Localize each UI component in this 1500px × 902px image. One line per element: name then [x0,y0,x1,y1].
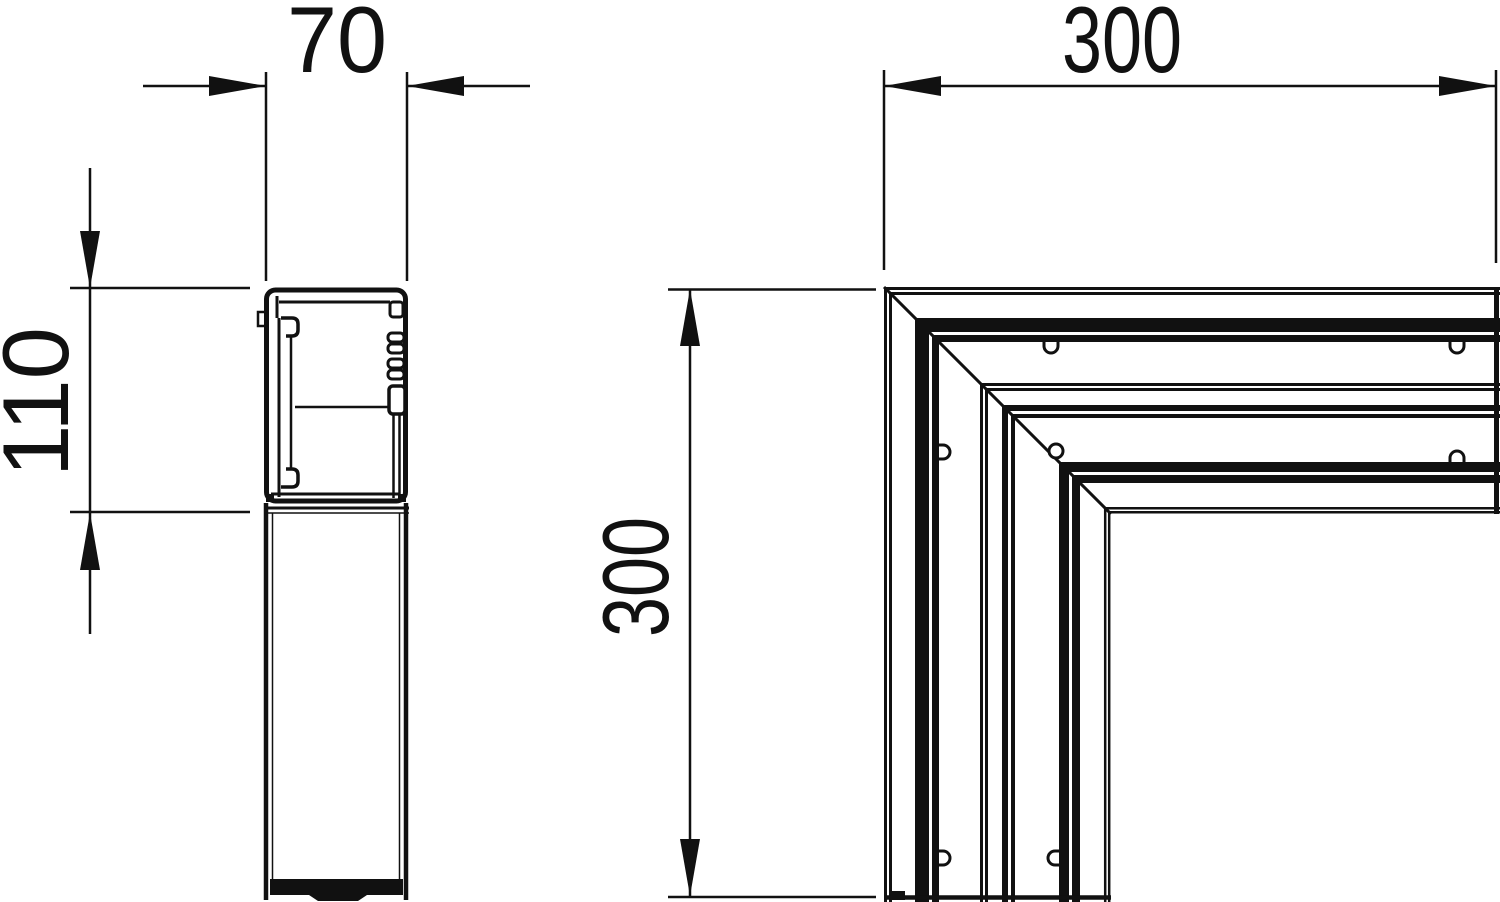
dimension-angle-height: 300 [583,289,876,897]
mounting-notch [1450,342,1464,353]
dimension-angle-length: 300 [884,0,1496,270]
body-end-band [270,879,403,895]
dim-arrow [680,289,700,346]
dim-label-profile-width: 70 [287,0,387,92]
mounting-notch [939,851,950,865]
flat-angle-plan-view [884,287,1500,902]
mounting-notch [1450,451,1464,462]
section-hook-bottom [281,469,298,487]
dim-arrow [884,76,941,96]
angle-band-d2 [1076,479,1500,902]
angle-band-d1 [1064,467,1500,902]
technical-drawing-canvas: 70 110 [0,0,1500,902]
profile-section-view [258,290,406,502]
section-clip [388,344,404,353]
dim-arrow [407,76,464,96]
dim-label-profile-height: 110 [0,327,88,477]
section-left-step [258,312,266,326]
mounting-notch [939,445,950,459]
dim-label-angle-length: 300 [1062,0,1182,92]
dim-arrow [1439,76,1496,96]
mounting-notch [1048,851,1059,865]
dim-arrow [680,839,700,896]
angle-inner-edge [1105,508,1500,902]
corner-hole [1049,444,1063,458]
section-clip [388,359,404,368]
angle-end-corner-fill [891,891,905,900]
body-end-foot [309,895,367,901]
dim-arrow [80,231,100,288]
section-corner-fill [266,494,274,502]
angle-inner-edge-inner [1109,512,1500,902]
section-hook-top [281,318,298,336]
dimension-profile-height: 110 [0,168,250,634]
section-corner-fill [398,494,406,502]
profile-body-view [264,503,409,901]
dim-arrow [80,513,100,570]
dim-label-angle-height: 300 [583,517,688,637]
dimension-profile-width: 70 [143,0,530,281]
section-clip [388,333,404,342]
section-top-tab [390,302,403,317]
drawing-sheet: 70 110 [0,0,1500,902]
dim-arrow [209,76,266,96]
section-clip [388,370,404,379]
section-latch-box [389,386,405,414]
mounting-notch [1044,342,1058,353]
